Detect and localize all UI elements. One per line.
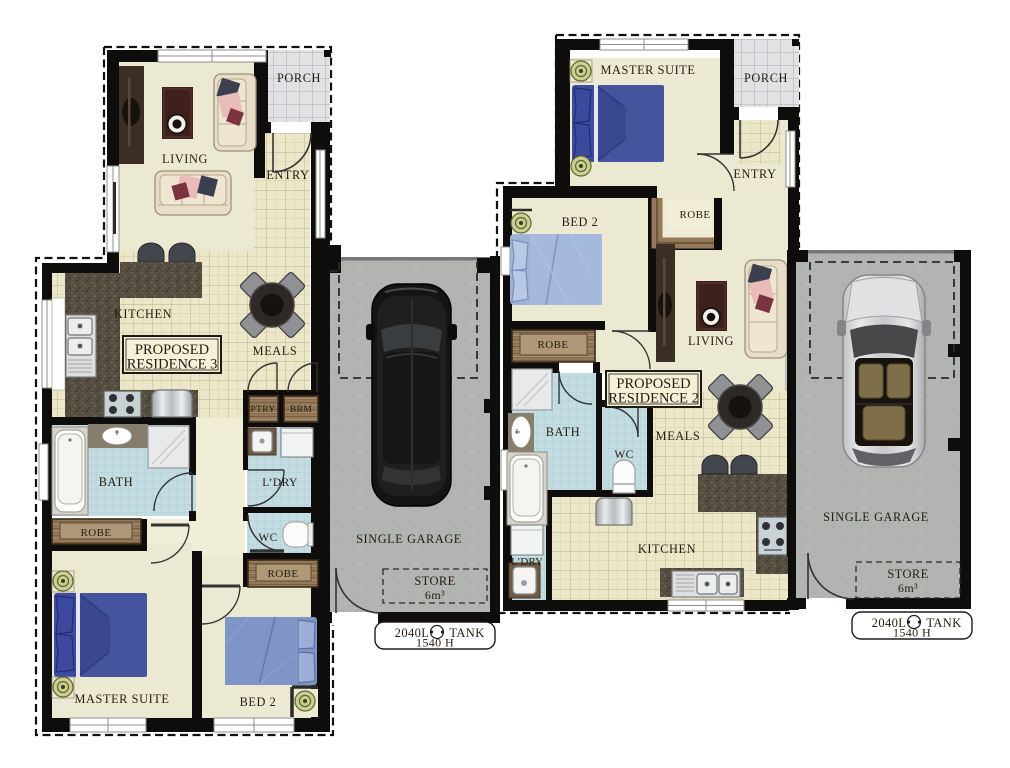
svg-text:L’DRY: L’DRY — [262, 477, 298, 489]
svg-text:MEALS: MEALS — [656, 429, 701, 443]
svg-text:BATH: BATH — [99, 475, 134, 489]
svg-text:ROBE: ROBE — [538, 339, 569, 351]
svg-text:KITCHEN: KITCHEN — [638, 542, 696, 556]
svg-text:RESIDENCE 3: RESIDENCE 3 — [127, 357, 218, 373]
svg-text:L’DRY: L’DRY — [511, 556, 543, 568]
svg-text:STORE: STORE — [414, 574, 455, 588]
svg-text:SINGLE GARAGE: SINGLE GARAGE — [356, 532, 462, 546]
svg-text:KITCHEN: KITCHEN — [114, 307, 172, 321]
svg-text:BED 2: BED 2 — [240, 695, 277, 709]
svg-text:MEALS: MEALS — [253, 344, 298, 358]
svg-text:1540 H: 1540 H — [893, 626, 931, 640]
svg-text:MASTER SUITE: MASTER SUITE — [601, 63, 696, 77]
svg-text:SINGLE GARAGE: SINGLE GARAGE — [823, 510, 929, 524]
svg-text:PORCH: PORCH — [744, 71, 788, 85]
svg-text:6m³: 6m³ — [425, 588, 445, 602]
svg-text:PORCH: PORCH — [277, 71, 321, 85]
svg-text:TANK: TANK — [449, 626, 484, 640]
svg-text:STORE: STORE — [887, 567, 928, 581]
svg-text:ROBE: ROBE — [268, 568, 299, 580]
svg-text:ENTRY: ENTRY — [733, 167, 776, 181]
svg-text:LIVING: LIVING — [162, 152, 208, 166]
svg-text:6m³: 6m³ — [898, 581, 918, 595]
svg-text:ROBE: ROBE — [680, 209, 711, 221]
svg-text:RESIDENCE 2: RESIDENCE 2 — [608, 391, 699, 407]
svg-text:ENTRY: ENTRY — [266, 168, 309, 182]
svg-text:BRM: BRM — [290, 405, 312, 415]
svg-text:WC: WC — [614, 449, 633, 461]
svg-text:MASTER SUITE: MASTER SUITE — [75, 692, 170, 706]
svg-text:1540 H: 1540 H — [416, 636, 454, 650]
svg-text:BATH: BATH — [546, 425, 581, 439]
svg-text:LIVING: LIVING — [688, 334, 734, 348]
svg-text:ROBE: ROBE — [81, 527, 112, 539]
svg-text:TANK: TANK — [926, 616, 961, 630]
svg-text:BED 2: BED 2 — [562, 215, 599, 229]
svg-text:PTRY: PTRY — [250, 405, 275, 415]
svg-text:WC: WC — [258, 532, 277, 544]
